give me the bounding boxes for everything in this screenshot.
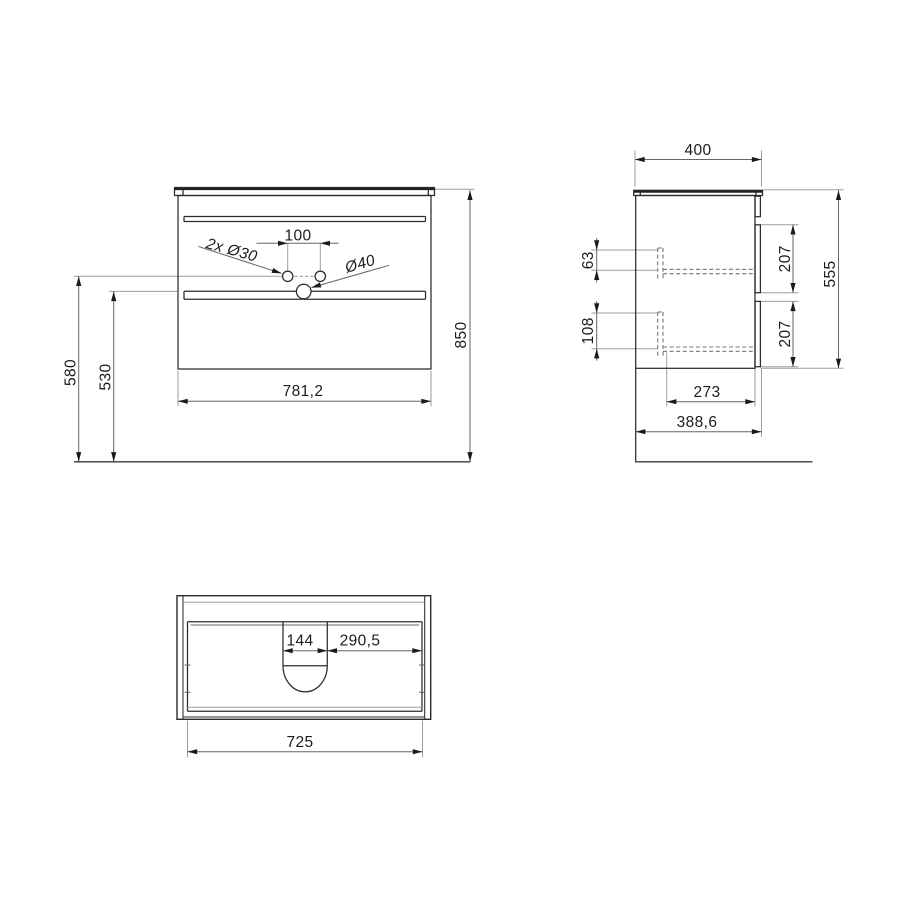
dim-side-height: 555 xyxy=(822,190,839,368)
label-drain-hole: Ø40 xyxy=(342,252,377,277)
side-drawer-front-upper xyxy=(755,225,760,293)
dim-inner-width-label: 725 xyxy=(286,734,313,751)
dim-drawer-depth-label: 273 xyxy=(693,384,720,401)
dim-side-drawer-fronts: 207 207 xyxy=(777,225,794,367)
dim-drawer-front-lower-label: 207 xyxy=(777,320,794,347)
dim-height-mid-label: 530 xyxy=(97,363,114,390)
faucet-hole-left xyxy=(283,271,293,281)
label-faucet-holes: 2x Ø30 xyxy=(203,235,259,265)
top-view: 144 290,5 725 xyxy=(177,596,431,758)
dim-inner-top-label: 63 xyxy=(580,251,597,269)
side-top-rail xyxy=(755,196,760,217)
dim-height-total-label: 850 xyxy=(453,321,470,348)
dim-depth-top-label: 400 xyxy=(684,142,711,159)
side-cabinet-body xyxy=(636,196,755,369)
side-hidden-drawer-upper xyxy=(658,248,755,279)
dim-depth-total-label: 388,6 xyxy=(677,414,718,431)
dim-side-depth-top: 400 xyxy=(635,142,762,160)
dim-front-width: 781,2 xyxy=(178,383,431,401)
dim-drawer-front-upper-label: 207 xyxy=(777,245,794,272)
dim-height-holes-label: 580 xyxy=(62,359,79,386)
dim-inner-bottom-label: 108 xyxy=(580,317,597,344)
dim-front-heights: 580 530 850 xyxy=(62,190,470,462)
dim-front-width-label: 781,2 xyxy=(283,383,324,400)
dim-cutout-to-side-label: 290,5 xyxy=(340,633,381,650)
dim-top-inner-width: 725 xyxy=(188,721,423,758)
front-view: 100 2x Ø30 Ø40 781,2 580 530 8 xyxy=(62,188,474,462)
dim-top-cutout: 144 290,5 xyxy=(283,633,422,651)
side-view: 400 63 108 207 207 555 273 xyxy=(580,142,843,462)
technical-drawing: 100 2x Ø30 Ø40 781,2 580 530 8 xyxy=(0,0,900,900)
front-cabinet-geometry xyxy=(175,188,435,370)
drawing-canvas: 100 2x Ø30 Ø40 781,2 580 530 8 xyxy=(0,0,900,900)
dim-side-height-label: 555 xyxy=(822,260,839,287)
dim-side-depths: 273 388,6 xyxy=(636,384,762,432)
side-drawer-front-lower xyxy=(755,301,760,366)
top-carcass-outline xyxy=(177,596,431,720)
dim-cutout-width-label: 144 xyxy=(286,633,313,650)
top-cabinet-geometry xyxy=(177,596,431,720)
drain-hole xyxy=(296,284,311,299)
dim-side-inner: 63 108 xyxy=(580,238,597,361)
dim-front-hole-spacing: 100 xyxy=(257,228,339,245)
faucet-hole-right xyxy=(315,271,325,281)
dim-hole-spacing-label: 100 xyxy=(284,228,311,245)
side-hidden-drawer-lower xyxy=(658,312,755,357)
